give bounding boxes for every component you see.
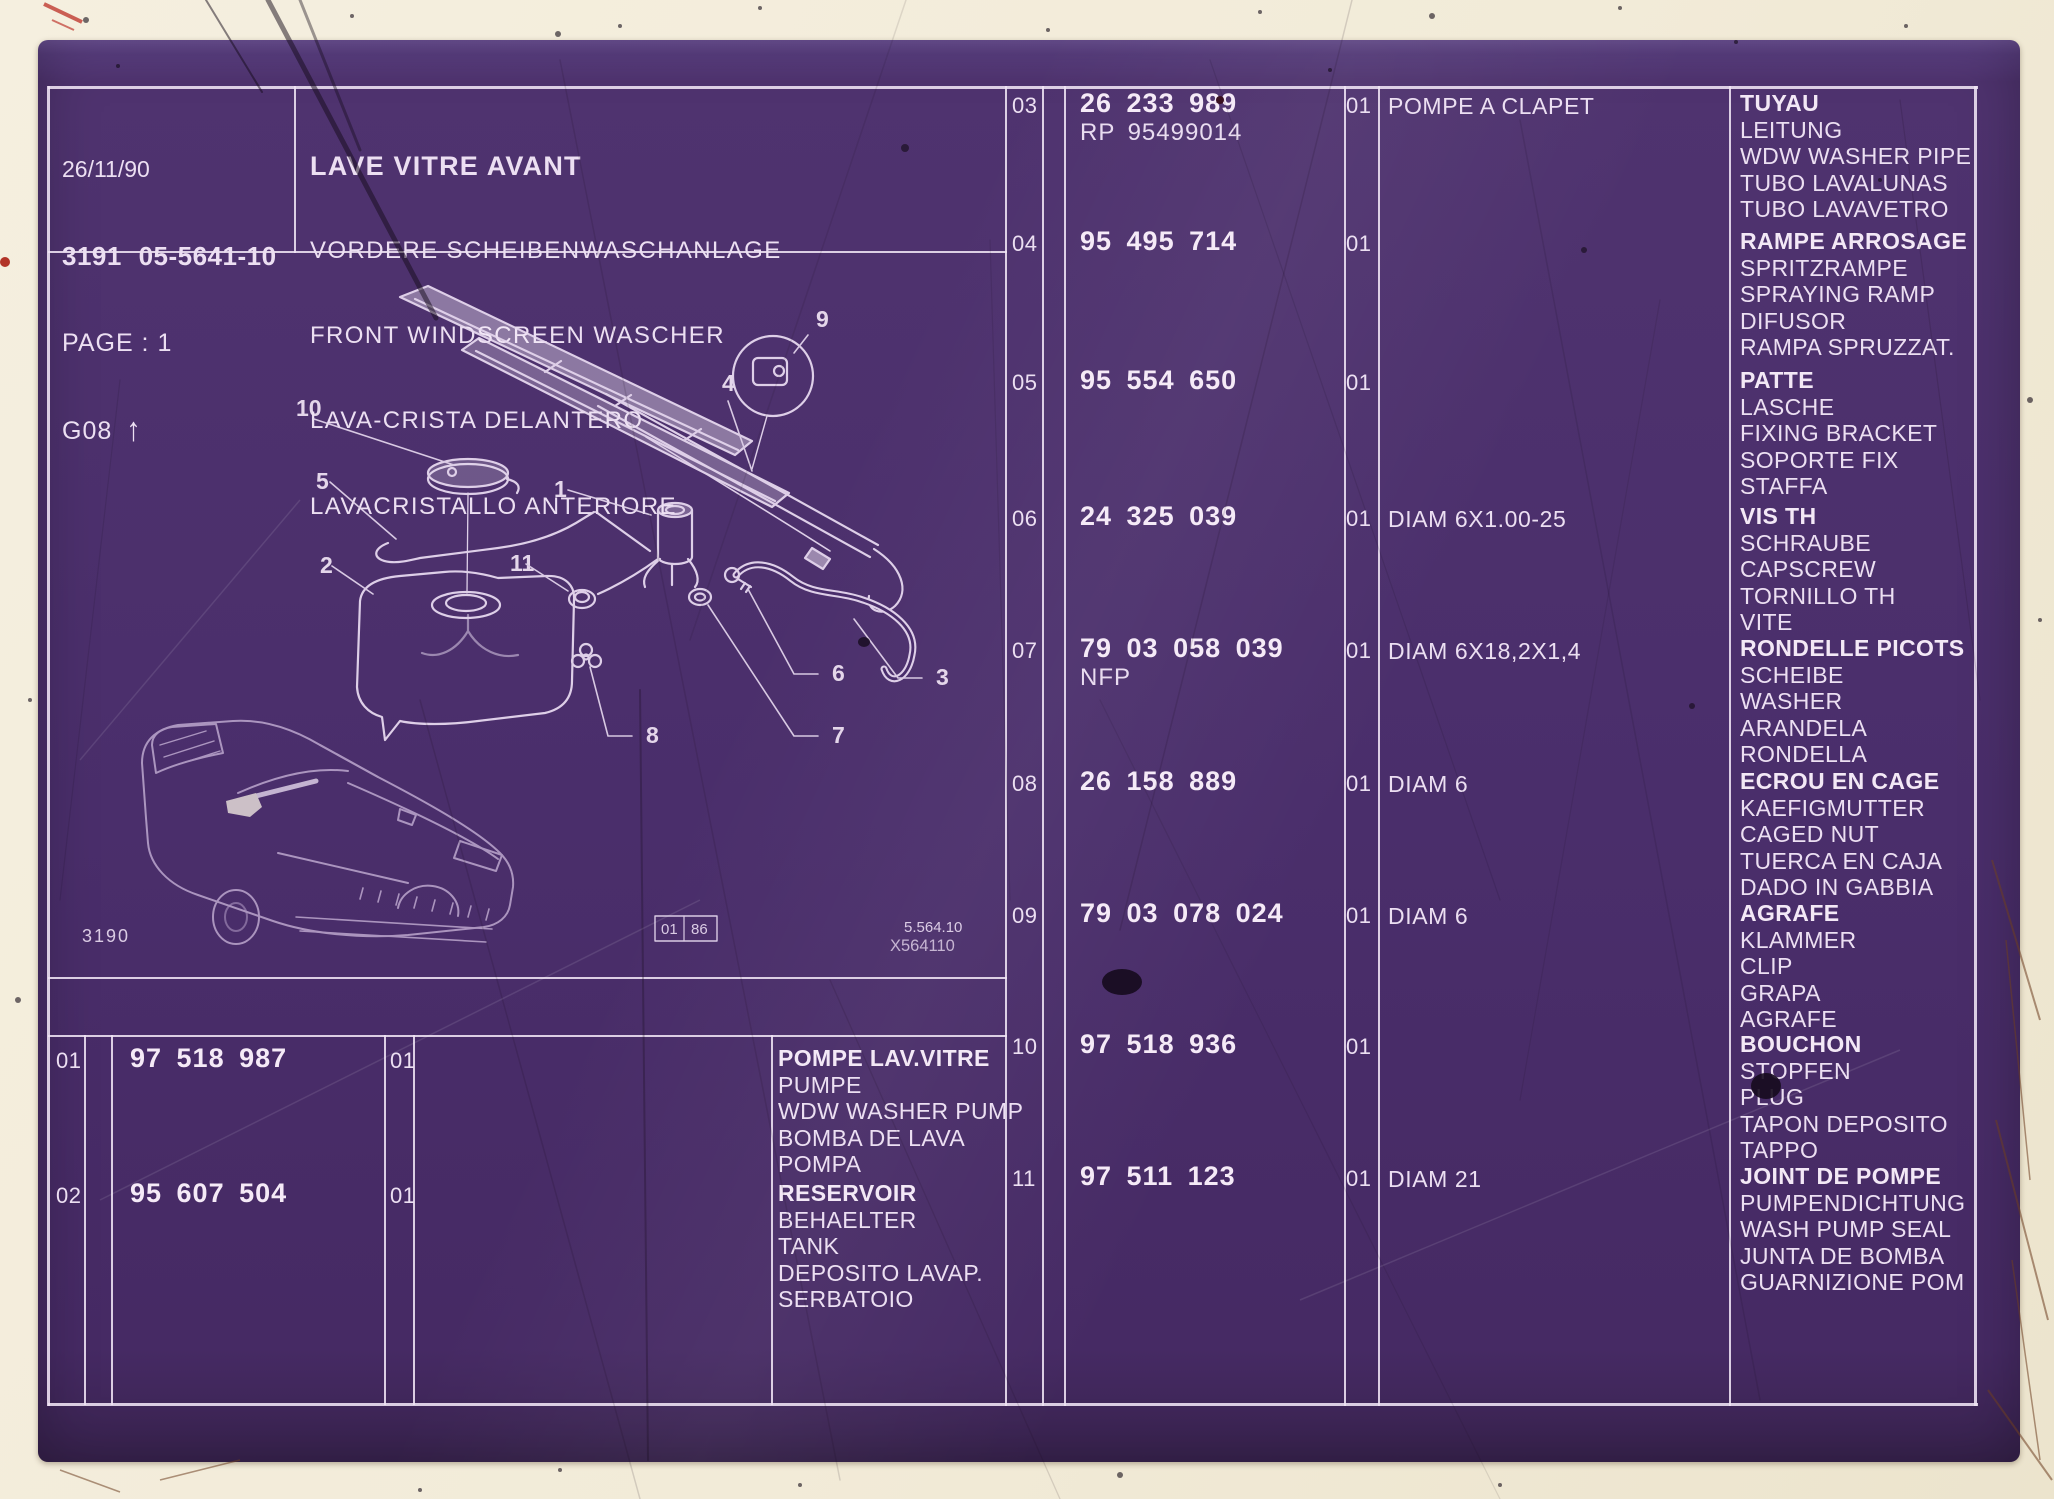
callout-leader-line (332, 566, 373, 594)
callout-number: 9 (816, 306, 829, 332)
grid-line-vertical (1974, 86, 1977, 1406)
dimension-note: POMPE A CLAPET (1388, 93, 1595, 120)
description-line: DADO IN GABBIA (1740, 874, 1942, 901)
description-block: PATTELASCHEFIXING BRACKETSOPORTE FIXSTAF… (1740, 367, 1937, 500)
description-line: DEPOSITO LAVAP. (778, 1260, 983, 1287)
description-line: KLAMMER (1740, 927, 1857, 954)
description-block: VIS THSCHRAUBECAPSCREWTORNILLO THVITE (1740, 503, 1896, 636)
part-number: 79 03 078 024 (1080, 898, 1284, 928)
description-line: PATTE (1740, 367, 1937, 394)
description-line: TUBO LAVALUNAS (1740, 170, 1971, 197)
grid-line-vertical (771, 1035, 773, 1405)
part-number: 24 325 039 (1080, 501, 1237, 531)
description-block: POMPE LAV.VITREPUMPEWDW WASHER PUMPBOMBA… (778, 1045, 1023, 1178)
grid-line-horizontal (48, 1403, 1978, 1406)
grid-line-vertical (1344, 86, 1346, 1406)
description-line: KAEFIGMUTTER (1740, 795, 1942, 822)
plate-ref-2: X564110 (890, 937, 955, 955)
description-line: SOPORTE FIX (1740, 447, 1937, 474)
description-line: RAMPA SPRUZZAT. (1740, 334, 1967, 361)
part-number: 26 158 889 (1080, 766, 1237, 796)
description-block: RONDELLE PICOTSSCHEIBEWASHERARANDELAROND… (1740, 635, 1965, 768)
row-ref-number: 09 (1012, 903, 1037, 929)
title-french: LAVE VITRE AVANT (310, 152, 782, 180)
description-block: RAMPE ARROSAGESPRITZRAMPESPRAYING RAMPDI… (1740, 228, 1967, 361)
description-line: PLUG (1740, 1084, 1948, 1111)
quantity: 01 (1346, 93, 1371, 119)
description-line: SCHEIBE (1740, 662, 1965, 689)
description-line: SCHRAUBE (1740, 530, 1896, 557)
description-line: BOMBA DE LAVA (778, 1125, 1023, 1152)
grid-line-vertical (1729, 86, 1731, 1406)
quantity: 01 (1346, 1166, 1371, 1192)
description-block: RESERVOIRBEHAELTERTANKDEPOSITO LAVAP.SER… (778, 1180, 983, 1313)
row-ref-number: 02 (56, 1183, 81, 1209)
description-line: GUARNIZIONE POM (1740, 1269, 1965, 1296)
description-line: BEHAELTER (778, 1207, 983, 1234)
date-box-year: 86 (691, 921, 708, 938)
washer-pump (644, 503, 698, 587)
callout-number: 8 (646, 722, 659, 748)
description-line: AGRAFE (1740, 900, 1857, 927)
part-number-main: 26 233 989 (1080, 88, 1242, 118)
dimension-note: DIAM 6 (1388, 771, 1468, 798)
grid-line-vertical (1042, 86, 1044, 1406)
description-line: TUBO LAVAVETRO (1740, 196, 1971, 223)
description-line: WDW WASHER PUMP (778, 1098, 1023, 1125)
callout-leader-line (330, 482, 396, 539)
description-block: TUYAULEITUNGWDW WASHER PIPETUBO LAVALUNA… (1740, 90, 1971, 223)
quantity: 01 (390, 1048, 415, 1074)
grid-line-vertical (384, 1035, 386, 1405)
description-line: RESERVOIR (778, 1180, 983, 1207)
part-number: 79 03 058 039NFP (1080, 633, 1284, 693)
clip (572, 644, 601, 667)
plate-ref-1: 5.564.10 (904, 919, 962, 936)
description-line: TANK (778, 1233, 983, 1260)
description-line: POMPA (778, 1151, 1023, 1178)
row-ref-number: 08 (1012, 771, 1037, 797)
part-number-main: 79 03 058 039 (1080, 633, 1284, 663)
description-line: GRAPA (1740, 980, 1857, 1007)
part-number-main: 95 607 504 (130, 1178, 287, 1208)
car-sketch (142, 721, 513, 944)
figure-number: 3190 (82, 926, 130, 946)
description-block: JOINT DE POMPEPUMPENDICHTUNGWASH PUMP SE… (1740, 1163, 1965, 1296)
description-line: SPRAYING RAMP (1740, 281, 1967, 308)
description-line: TUYAU (1740, 90, 1971, 117)
description-line: RONDELLA (1740, 741, 1965, 768)
callout-leader-line (590, 667, 632, 736)
description-line: JOINT DE POMPE (1740, 1163, 1965, 1190)
description-line: ECROU EN CAGE (1740, 768, 1942, 795)
description-line: DIFUSOR (1740, 308, 1967, 335)
description-line: AGRAFE (1740, 1006, 1857, 1033)
description-line: TAPPO (1740, 1137, 1948, 1164)
description-line: PUMPENDICHTUNG (1740, 1190, 1965, 1217)
part-number: 95 554 650 (1080, 365, 1237, 395)
callout-number: 11 (510, 550, 535, 576)
callout-number: 4 (722, 370, 735, 396)
part-number: 97 518 987 (130, 1043, 287, 1073)
description-line: TUERCA EN CAJA (1740, 848, 1942, 875)
callout-leader-line (314, 419, 454, 465)
callout-number: 6 (832, 660, 845, 686)
row-ref-number: 06 (1012, 506, 1037, 532)
washer-ring (689, 589, 711, 605)
grid-line-vertical (1064, 86, 1066, 1406)
description-line: WASHER (1740, 688, 1965, 715)
description-line: LEITUNG (1740, 117, 1971, 144)
part-number-main: 97 518 936 (1080, 1029, 1237, 1059)
callout-leader-line (748, 589, 818, 674)
part-number-main: 97 518 987 (130, 1043, 287, 1073)
description-line: WDW WASHER PIPE (1740, 143, 1971, 170)
callout-number: 10 (296, 395, 322, 421)
dimension-note: DIAM 6X1.00-25 (1388, 506, 1566, 533)
quantity: 01 (1346, 903, 1371, 929)
row-ref-number: 01 (56, 1048, 81, 1074)
callout-number: 2 (320, 552, 333, 578)
dimension-note: DIAM 21 (1388, 1166, 1482, 1193)
callout-number: 5 (316, 468, 329, 494)
quantity: 01 (1346, 771, 1371, 797)
description-line: PUMPE (778, 1072, 1023, 1099)
callout-number: 1 (554, 476, 567, 502)
description-line: TAPON DEPOSITO (1740, 1111, 1948, 1138)
description-line: SPRITZRAMPE (1740, 255, 1967, 282)
callout-leader-line (708, 605, 818, 736)
grid-line-horizontal (48, 1035, 1007, 1037)
row-ref-number: 10 (1012, 1034, 1037, 1060)
part-number: 95 607 504 (130, 1178, 287, 1208)
nozzle-detail-circle (733, 336, 813, 416)
capscrew (725, 568, 751, 592)
description-line: STOPFEN (1740, 1058, 1948, 1085)
date-box-month: 01 (661, 921, 678, 938)
description-line: ARANDELA (1740, 715, 1965, 742)
technical-illustration: 1234567891011 3190 01 86 5.564.10 X56411… (48, 253, 1006, 978)
description-block: ECROU EN CAGEKAEFIGMUTTERCAGED NUTTUERCA… (1740, 768, 1942, 901)
description-block: AGRAFEKLAMMERCLIPGRAPAAGRAFE (1740, 900, 1857, 1033)
grid-line-vertical (84, 1035, 86, 1405)
part-number-sub: NFP (1080, 663, 1284, 693)
description-line: VIS TH (1740, 503, 1896, 530)
quantity: 01 (1346, 370, 1371, 396)
callout-leader-line (568, 490, 651, 515)
part-number-main: 79 03 078 024 (1080, 898, 1284, 928)
description-line: POMPE LAV.VITRE (778, 1045, 1023, 1072)
part-number-sub: RP 95499014 (1080, 118, 1242, 148)
description-block: BOUCHONSTOPFENPLUGTAPON DEPOSITOTAPPO (1740, 1031, 1948, 1164)
callout-number: 7 (832, 722, 845, 748)
description-line: CLIP (1740, 953, 1857, 980)
part-number-main: 95 554 650 (1080, 365, 1237, 395)
part-number: 97 511 123 (1080, 1161, 1236, 1191)
quantity: 01 (390, 1183, 415, 1209)
part-number-main: 95 495 714 (1080, 226, 1237, 256)
description-line: FIXING BRACKET (1740, 420, 1937, 447)
description-line: WASH PUMP SEAL (1740, 1216, 1965, 1243)
row-ref-number: 11 (1012, 1166, 1036, 1192)
reservoir (357, 571, 574, 740)
quantity: 01 (1346, 506, 1371, 532)
description-line: RONDELLE PICOTS (1740, 635, 1965, 662)
description-line: CAGED NUT (1740, 821, 1942, 848)
grid-line-horizontal (48, 86, 1978, 89)
callout-number: 3 (936, 664, 949, 690)
dimension-note: DIAM 6X18,2X1,4 (1388, 638, 1581, 665)
part-number-main: 24 325 039 (1080, 501, 1237, 531)
callout-labels: 1234567891011 (296, 306, 949, 748)
description-line: CAPSCREW (1740, 556, 1896, 583)
part-number: 95 495 714 (1080, 226, 1237, 256)
grid-line-vertical (1378, 86, 1380, 1406)
quantity: 01 (1346, 231, 1371, 257)
description-line: JUNTA DE BOMBA (1740, 1243, 1965, 1270)
part-number: 26 233 989RP 95499014 (1080, 88, 1242, 148)
description-line: SERBATOIO (778, 1286, 983, 1313)
description-line: TORNILLO TH (1740, 583, 1896, 610)
description-line: BOUCHON (1740, 1031, 1948, 1058)
grid-line-vertical (413, 1035, 415, 1405)
description-line: LASCHE (1740, 394, 1937, 421)
description-line: STAFFA (1740, 473, 1937, 500)
quantity: 01 (1346, 638, 1371, 664)
grid-line-vertical (111, 1035, 113, 1405)
header-date: 26/11/90 (62, 155, 277, 184)
quantity: 01 (1346, 1034, 1371, 1060)
dimension-note: DIAM 6 (1388, 903, 1468, 930)
part-number-main: 97 511 123 (1080, 1161, 1236, 1191)
part-number-main: 26 158 889 (1080, 766, 1237, 796)
row-ref-number: 03 (1012, 93, 1037, 119)
description-line: VITE (1740, 609, 1896, 636)
part-number: 97 518 936 (1080, 1029, 1237, 1059)
row-ref-number: 05 (1012, 370, 1037, 396)
parts-catalog-page: 26/11/90 3191 05-5641-10 PAGE : 1 G08↑ L… (0, 0, 2054, 1499)
row-ref-number: 07 (1012, 638, 1037, 664)
grid-line-vertical (294, 86, 296, 253)
description-line: RAMPE ARROSAGE (1740, 228, 1967, 255)
row-ref-number: 04 (1012, 231, 1037, 257)
